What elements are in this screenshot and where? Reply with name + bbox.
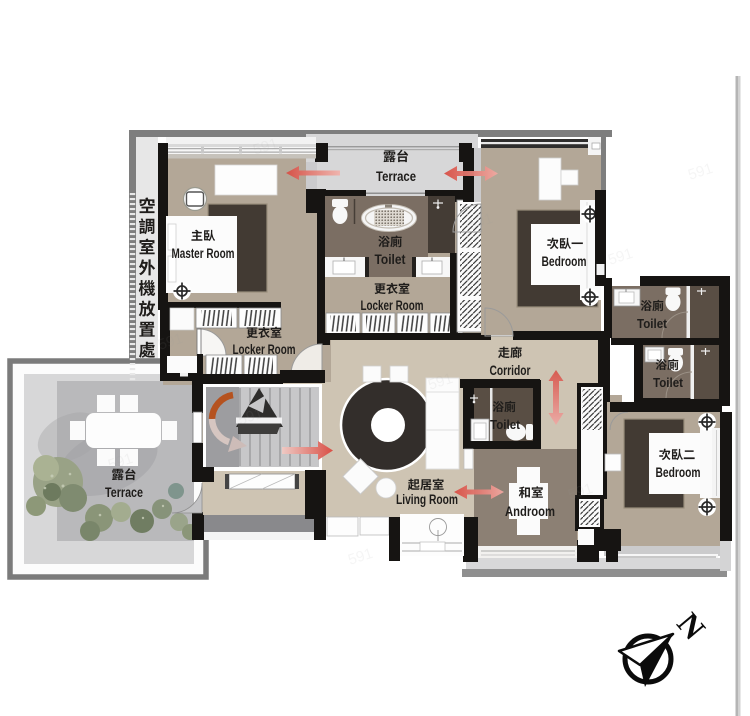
svg-text:Bedroom: Bedroom [656, 465, 701, 480]
svg-text:Master Room: Master Room [172, 246, 235, 261]
svg-text:Androom: Androom [505, 504, 555, 519]
svg-text:Terrace: Terrace [376, 169, 416, 184]
svg-text:Bedroom: Bedroom [542, 254, 587, 269]
svg-text:Corridor: Corridor [490, 363, 532, 378]
svg-text:Toilet: Toilet [637, 316, 668, 331]
svg-text:Toilet: Toilet [375, 252, 406, 267]
svg-text:Living Room: Living Room [396, 492, 458, 507]
svg-text:Locker Room: Locker Room [361, 298, 424, 313]
svg-text:Toilet: Toilet [490, 417, 521, 432]
svg-text:Terrace: Terrace [105, 485, 143, 500]
svg-text:Toilet: Toilet [653, 375, 684, 390]
